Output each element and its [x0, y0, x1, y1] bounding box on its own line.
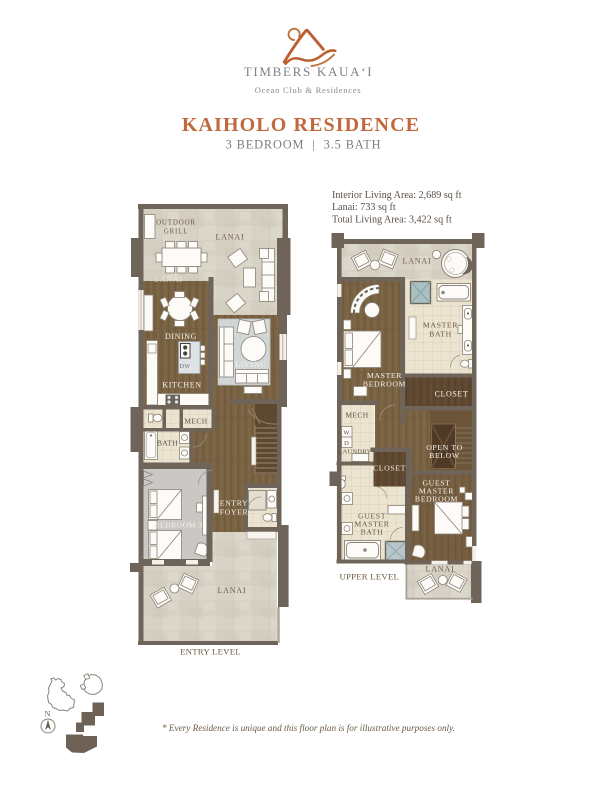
svg-text:BEDROOM: BEDROOM — [363, 380, 406, 389]
svg-text:LAUNDRY: LAUNDRY — [338, 449, 371, 456]
svg-text:Ocean Club & Residences: Ocean Club & Residences — [255, 85, 362, 95]
svg-text:FOYER: FOYER — [220, 508, 249, 517]
svg-text:BELOW: BELOW — [429, 451, 460, 460]
svg-text:BATH: BATH — [157, 439, 178, 448]
svg-text:ENTRY LEVEL: ENTRY LEVEL — [180, 647, 241, 657]
svg-text:BEDROOM: BEDROOM — [415, 495, 458, 504]
svg-text:KAIHOLO RESIDENCE: KAIHOLO RESIDENCE — [182, 114, 420, 136]
svg-text:BATH: BATH — [429, 330, 452, 339]
svg-text:N: N — [45, 710, 51, 719]
svg-text:LANAI: LANAI — [216, 233, 245, 242]
svg-text:LANAI: LANAI — [426, 565, 455, 574]
svg-text:GRILL: GRILL — [164, 228, 189, 236]
svg-text:Lanai: 733 sq ft: Lanai: 733 sq ft — [332, 202, 396, 213]
svg-text:MASTER: MASTER — [423, 321, 458, 330]
svg-text:OUTDOOR: OUTDOOR — [156, 219, 196, 227]
svg-text:LANAI: LANAI — [218, 586, 247, 595]
svg-text:LANAI: LANAI — [403, 257, 432, 266]
svg-text:UPPER LEVEL: UPPER LEVEL — [339, 572, 399, 582]
svg-text:3 BEDROOM | 3.5 BATH: 3 BEDROOM | 3.5 BATH — [226, 138, 382, 152]
svg-text:MECH: MECH — [184, 417, 207, 426]
svg-text:MECH: MECH — [345, 411, 368, 420]
svg-text:* Every Residence is unique an: * Every Residence is unique and this flo… — [162, 723, 455, 733]
svg-text:W: W — [343, 430, 350, 437]
svg-text:CLOSET: CLOSET — [435, 390, 469, 399]
svg-text:BEDROOM 3: BEDROOM 3 — [154, 521, 202, 530]
svg-text:DW: DW — [180, 364, 191, 370]
svg-text:Interior Living Area: 2,689 sq: Interior Living Area: 2,689 sq ft — [332, 190, 462, 201]
svg-text:CLOSET: CLOSET — [373, 464, 406, 473]
svg-text:TIMBERS KAUAʻI: TIMBERS KAUAʻI — [244, 64, 374, 79]
svg-text:Total Living Area: 3,422 sq ft: Total Living Area: 3,422 sq ft — [332, 214, 452, 225]
svg-text:D: D — [344, 440, 349, 447]
svg-text:KITCHEN: KITCHEN — [162, 381, 201, 390]
svg-text:BATH: BATH — [361, 528, 384, 537]
svg-text:ENTRY: ENTRY — [220, 499, 249, 508]
svg-text:LANAI: LANAI — [154, 275, 183, 284]
svg-text:LIVING: LIVING — [235, 360, 266, 369]
svg-text:DINING: DINING — [165, 332, 197, 341]
